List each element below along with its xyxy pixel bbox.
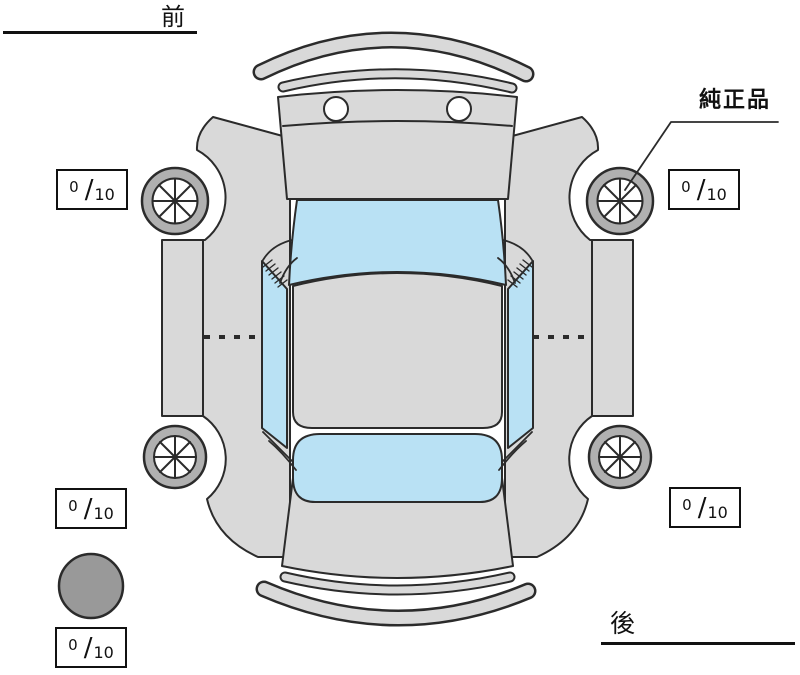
- tread-slash: /: [85, 175, 94, 205]
- genuine-part-label: 純正品: [699, 90, 771, 112]
- tread-slash: /: [84, 633, 93, 663]
- tread-value: 0: [69, 178, 79, 196]
- tread-depth-box-front-left: 0 / 10: [56, 169, 128, 210]
- tread-slash: /: [698, 493, 707, 523]
- left-side-window: [262, 261, 287, 448]
- tread-max: 10: [706, 185, 726, 204]
- rear-window: [293, 434, 502, 502]
- headlight-right-icon: [447, 97, 471, 121]
- car-top-view-diagram: [0, 0, 800, 675]
- headlight-left-icon: [324, 97, 348, 121]
- wheel-rear-left-icon: [144, 426, 206, 488]
- tread-value: 0: [681, 178, 691, 196]
- front-label-underline: [3, 31, 197, 34]
- tread-depth-box-front-right: 0 / 10: [668, 169, 740, 210]
- right-side-window: [508, 261, 533, 448]
- wheel-front-right-icon: [587, 168, 653, 234]
- spare-tire-icon: [59, 554, 123, 618]
- rear-label-underline: [601, 642, 795, 645]
- tread-value: 0: [682, 496, 692, 514]
- tread-depth-box-spare: 0 / 10: [55, 627, 127, 668]
- tread-value: 0: [68, 636, 78, 654]
- tread-value: 0: [68, 497, 78, 515]
- car-inspection-sheet: 前 後 純正品 0 / 10 0 / 10 0 / 10 0 / 10 0 / …: [0, 0, 800, 675]
- front-label: 前: [161, 5, 185, 29]
- tread-slash: /: [697, 175, 706, 205]
- wheel-front-left-icon: [142, 168, 208, 234]
- tread-max: 10: [93, 504, 113, 523]
- roof: [293, 273, 502, 428]
- front-bumper: [261, 40, 526, 88]
- rear-bumper: [264, 577, 528, 618]
- rear-label: 後: [610, 611, 635, 636]
- tread-max: 10: [94, 185, 114, 204]
- wheel-rear-right-icon: [589, 426, 651, 488]
- hood: [278, 90, 517, 199]
- tread-depth-box-rear-right: 0 / 10: [669, 487, 741, 528]
- tread-depth-box-rear-left: 0 / 10: [55, 488, 127, 529]
- tread-max: 10: [707, 503, 727, 522]
- tread-max: 10: [93, 643, 113, 662]
- tread-slash: /: [84, 494, 93, 524]
